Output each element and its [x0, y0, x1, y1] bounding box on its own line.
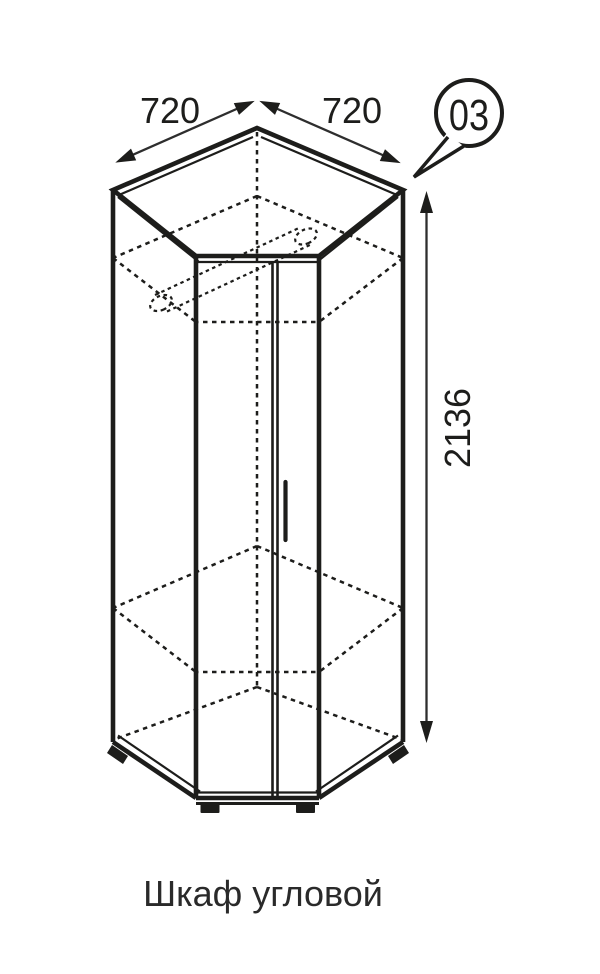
width-dimension-label-right: 720 — [322, 90, 382, 131]
width-dimension-left: 720 — [115, 90, 254, 163]
bottom-right-slope — [319, 742, 403, 798]
arrowhead-icon — [420, 191, 433, 213]
width-dimension-label-left: 720 — [140, 90, 200, 131]
bottom-panel-dashed-outline — [113, 687, 403, 740]
foot-front-left — [201, 804, 220, 813]
arrowhead-icon — [420, 721, 433, 743]
arrowhead-icon — [380, 149, 401, 163]
top-panel-outline — [113, 128, 403, 256]
height-dimension-label: 2136 — [437, 388, 478, 468]
technical-drawing-page: 720 720 2136 03 Шкаф угловой — [0, 0, 600, 974]
callout: 03 — [410, 80, 502, 181]
callout-number: 03 — [449, 91, 489, 140]
arrowhead-icon — [234, 101, 255, 115]
foot-front-right — [296, 804, 315, 813]
arrowhead-icon — [259, 101, 280, 115]
bottom-left-slope — [113, 742, 196, 798]
height-dimension: 2136 — [420, 191, 478, 743]
corner-wardrobe-diagram: 720 720 2136 03 Шкаф угловой — [0, 0, 600, 974]
door-gap — [273, 262, 278, 798]
width-dimension-right: 720 — [259, 90, 400, 163]
wardrobe-outline — [107, 128, 409, 813]
figure-caption: Шкаф угловой — [143, 873, 383, 914]
arrowhead-icon — [115, 149, 136, 163]
